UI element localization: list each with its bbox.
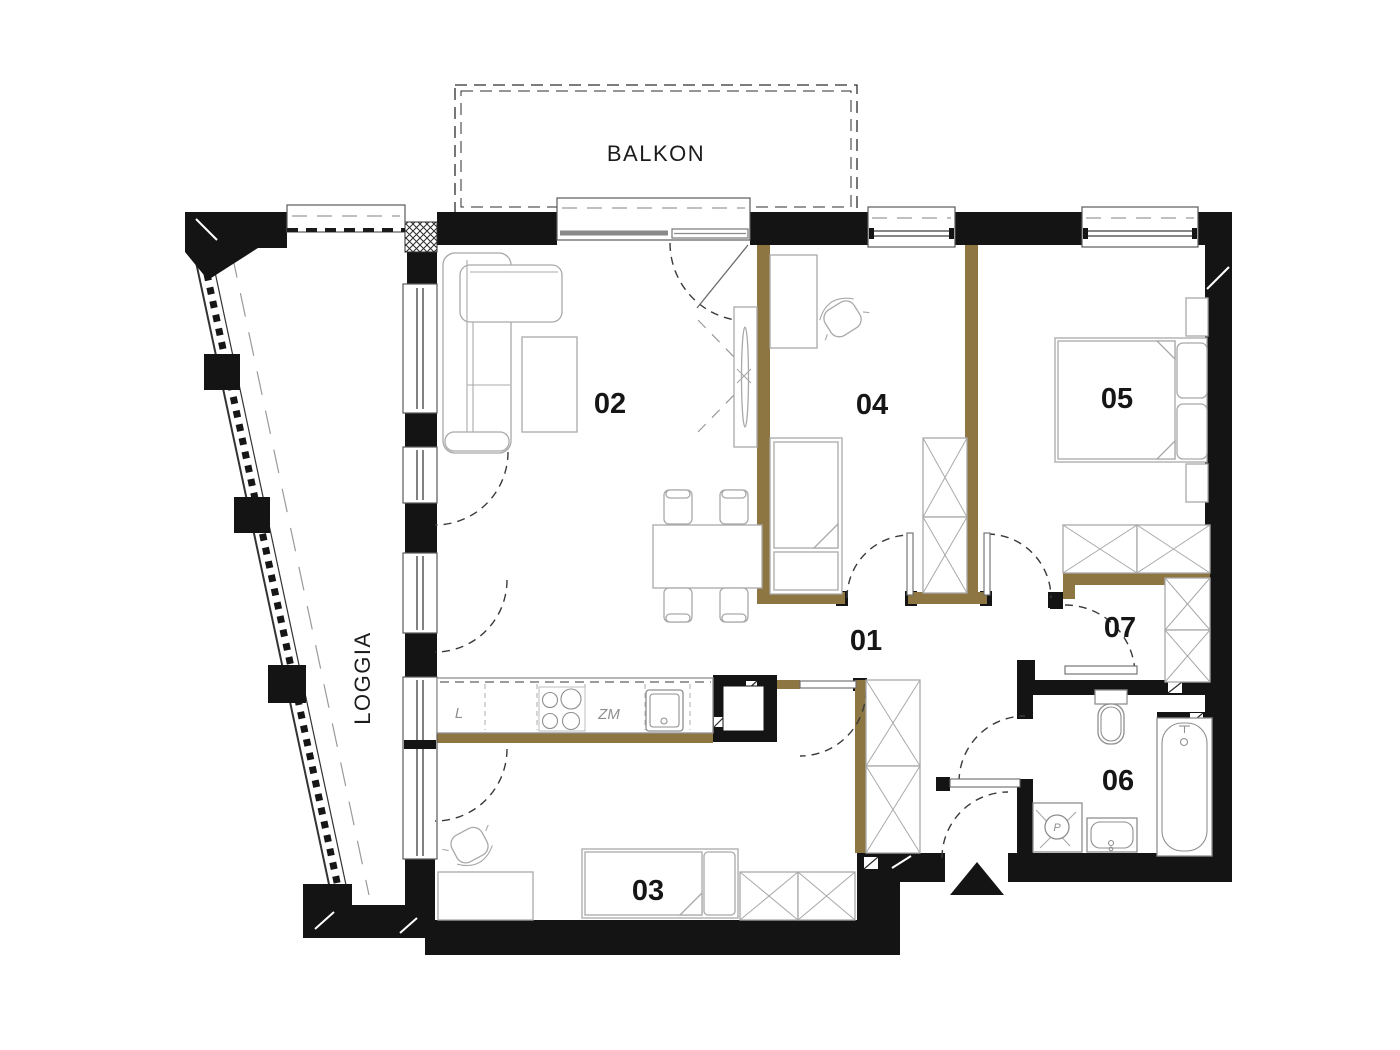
coffee-table [522,337,577,432]
wardrobe [740,872,855,920]
dining-set [653,490,762,622]
door-leaf-room04 [907,533,913,595]
door-swing-kitchen-loggia [435,580,507,652]
desk [438,872,533,920]
window-top-left [287,205,405,232]
toilet [1095,690,1127,744]
nightstand [1186,298,1208,336]
pillow [1177,404,1207,459]
loggia-door-kitchen [403,553,437,633]
dining-chair [720,490,748,524]
room04-furniture [770,255,967,594]
room-label-07: 07 [1104,612,1136,644]
floor-plan: BALKON LOGGIA [0,0,1400,1050]
entrance-marker [950,862,1004,895]
door-leaf-room07 [1065,666,1137,674]
door-leaf-balcony [697,245,748,308]
kitchen-counter: L ZM [437,678,713,733]
room07-wardrobe [1165,578,1210,682]
door-swing-living-loggia [435,452,508,525]
door-swing-room04 [847,535,910,598]
loggia-wall-glazing [403,284,437,859]
wardrobe [923,438,967,593]
balcony-label: BALKON [607,141,705,166]
tv-cone-line [698,395,734,432]
living-room-furniture [443,253,762,622]
room-label-01: 01 [850,625,882,657]
door-swing-room05 [987,534,1051,598]
dining-table [653,525,762,588]
dining-chair [664,490,692,524]
room05-furniture [1055,298,1210,573]
door-swing-entrance [942,792,1008,858]
balcony-door [557,198,750,240]
vent-icon [864,857,878,869]
pillow [1177,343,1207,398]
washer-label: P [1053,822,1061,834]
room-label-02: 02 [594,388,626,420]
nightstand [1186,464,1208,502]
masonry-hatch-block [405,222,437,252]
dining-chair [664,588,692,622]
dining-chair [720,588,748,622]
hall-wardrobe [866,680,920,853]
room-label-05: 05 [1101,383,1133,415]
floor-plan-drawing: BALKON LOGGIA [0,0,1400,1050]
shaft-opening [723,686,764,731]
kitchen-sink [646,690,683,731]
window-room05-right [1082,207,1198,247]
office-chair [440,820,502,875]
tv-stand [734,307,757,447]
door-leaf-room03 [800,681,856,688]
bed [770,438,842,594]
office-chair [810,288,873,345]
tv-cone-line [698,320,734,357]
room-label-04: 04 [856,389,888,421]
window-loggia-1 [403,284,437,413]
washing-machine: P [1033,803,1082,852]
loggia-label: LOGGIA [350,631,375,724]
fridge-label: L [455,705,463,722]
bathroom-sink [1087,818,1137,852]
wardrobe [1063,525,1210,573]
room-label-03: 03 [632,875,664,907]
room-label-06: 06 [1102,765,1134,797]
loggia-rail-dashed [232,254,369,895]
door-leaf-bathroom [950,779,1020,787]
bathtub [1157,718,1212,856]
door-swing-bathroom [959,716,1025,782]
loggia-door-room03 [403,677,437,859]
desk [770,255,817,348]
balcony-area: BALKON [455,85,857,213]
vent-icon [1168,682,1182,693]
dishwasher-label: ZM [597,706,620,723]
door-swing-room03-loggia [435,749,507,821]
loggia-window-band: LOGGIA [196,254,375,903]
door-leaf-room05 [984,533,990,595]
loggia-door-living [403,447,437,503]
stove [539,687,585,731]
window-room05-left [868,207,955,247]
